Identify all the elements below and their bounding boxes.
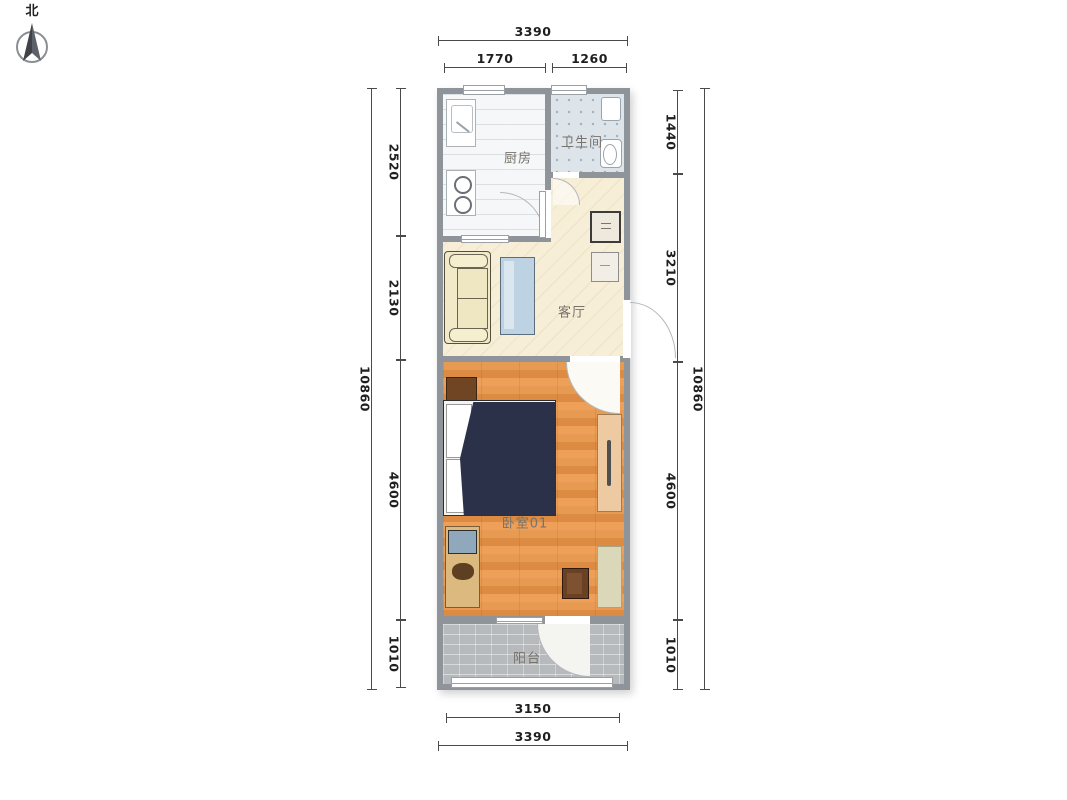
kitchen-label: 厨房 bbox=[504, 148, 532, 167]
bedroom-window bbox=[496, 617, 543, 624]
wardrobe bbox=[597, 414, 622, 512]
compass: 北 bbox=[10, 4, 54, 70]
dim-overall-depth-right: 10860 bbox=[704, 88, 705, 690]
toilet-icon bbox=[600, 139, 622, 168]
appliance-box-2 bbox=[591, 252, 619, 282]
kitchen-stove-icon bbox=[446, 170, 476, 216]
kitchen-sink-icon bbox=[446, 99, 476, 147]
tv-cabinet bbox=[562, 568, 589, 599]
balcony-label: 阳台 bbox=[513, 648, 541, 667]
balcony-window bbox=[451, 677, 613, 688]
dim-balcony-depth-right: 1010 bbox=[677, 620, 678, 690]
dim-bathroom-depth: 1440 bbox=[677, 90, 678, 174]
bathroom-window bbox=[551, 85, 587, 95]
appliance-box-1 bbox=[590, 211, 621, 243]
sofa bbox=[444, 251, 491, 344]
compass-north-label: 北 bbox=[10, 4, 54, 20]
entry-door-arc-icon bbox=[630, 302, 676, 358]
dim-kitchen-depth: 2520 bbox=[400, 88, 401, 236]
dim-overall-depth-left: 10860 bbox=[371, 88, 372, 690]
bathroom-door-gap bbox=[553, 172, 579, 178]
dim-overall-width-top: 3390 bbox=[438, 40, 628, 41]
kitchen-door-leaf bbox=[539, 191, 546, 238]
dim-bathroom-width: 1260 bbox=[552, 67, 627, 68]
balcony-door-gap bbox=[545, 616, 590, 624]
coffee-table bbox=[500, 257, 535, 335]
bedroom-label: 卧室01 bbox=[502, 513, 549, 532]
dim-balcony-depth-left: 1010 bbox=[400, 620, 401, 688]
blanket bbox=[460, 402, 555, 515]
computer-monitor-icon bbox=[448, 530, 477, 554]
kitchen-window bbox=[463, 85, 505, 95]
dim-balcony-width: 3150 bbox=[446, 717, 620, 718]
compass-icon bbox=[10, 20, 54, 66]
desk-chair bbox=[452, 563, 474, 580]
dim-bedroom-depth-right: 4600 bbox=[677, 362, 678, 620]
dim-bedroom-depth-left: 4600 bbox=[400, 360, 401, 620]
living-room-label: 客厅 bbox=[558, 302, 586, 321]
desk bbox=[445, 526, 480, 608]
dim-living-depth-right: 3210 bbox=[677, 174, 678, 362]
dim-overall-width-bottom: 3390 bbox=[438, 745, 628, 746]
bathroom-label: 卫生间 bbox=[561, 132, 603, 151]
dim-kitchen-width: 1770 bbox=[444, 67, 546, 68]
floorplan-canvas: 北 bbox=[0, 0, 1067, 800]
side-cabinet bbox=[597, 546, 622, 608]
bathroom-basin-icon bbox=[601, 97, 621, 121]
wardrobe-handle-icon bbox=[607, 440, 611, 486]
dim-living-depth-left: 2130 bbox=[400, 236, 401, 360]
bed bbox=[443, 400, 556, 516]
